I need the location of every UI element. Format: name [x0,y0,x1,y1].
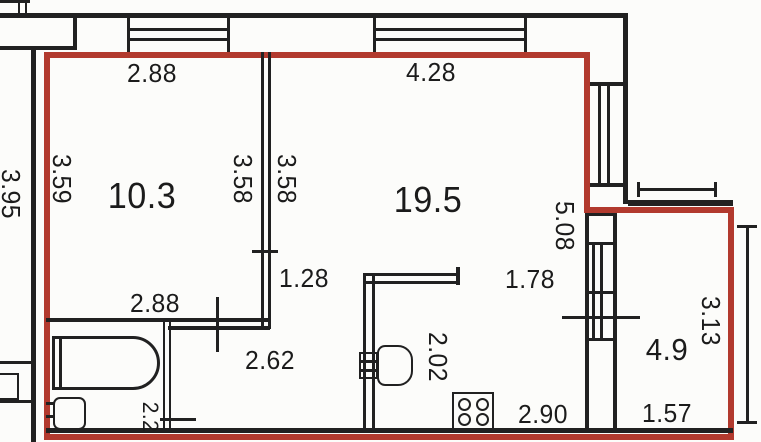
dim-balcony-height-label: 3.13 [698,281,724,361]
dim-corridor-label: 2.62 [232,347,308,373]
stove-burner [476,413,489,426]
dim-kitchen-opening-label: 1.78 [492,266,568,292]
balcony-window-dimension-cross [562,316,640,319]
dimension-line-right-cap [737,225,757,228]
dim-wall-stub-label: 1.28 [266,265,342,291]
boundary-top [44,52,590,58]
dimension-line-balcony-cap [637,182,640,197]
shaft-glazing [607,86,610,183]
stove-burner [476,398,489,411]
stove-burner [458,398,471,411]
wall-divider-tick [252,250,278,253]
floor-plan: 2.88 4.28 10.3 19.5 4.9 3.95 3.59 3.58 3… [0,0,761,442]
wall-bathroom-right [163,322,171,433]
wall-kitchen-balcony-cap [585,213,617,216]
sink-tap-line [359,369,378,372]
shaft-glazing [598,86,601,183]
neighbor-fixture-box [0,373,19,400]
dimension-line-right [746,226,749,424]
wall-upper-left-vertical [73,16,77,48]
dim-top-right-label: 4.28 [393,59,469,85]
washbasin-tap [46,402,54,405]
dim-left-outer-label: 3.95 [0,154,24,234]
neighbor-fixture-line [0,400,31,403]
window-tick [524,18,527,52]
sink-tap-line [359,360,378,363]
dimension-line-right-cap [737,421,757,424]
window-sill [373,38,527,41]
shaft-bottom-line [588,183,628,187]
window-tick [227,18,230,52]
dimension-line-balcony-cap [714,182,717,197]
window-tick [127,18,130,52]
dim-kitchen-width-label: 2.90 [505,401,581,427]
balcony-window-tick [585,291,617,294]
wall-kitchen-counter-cap [456,267,460,285]
balcony-area-label: 4.9 [629,334,705,365]
wall-building-right [623,13,628,204]
wall-top [0,13,628,18]
dim-right-height-label: 5.08 [552,186,578,266]
boundary-step [584,207,734,213]
dim-bottom-room-label: 2.88 [117,290,193,316]
room1-area-label: 10.3 [95,178,190,214]
dim-top-left-label: 2.88 [114,60,190,86]
window-sill [373,28,527,31]
wall-hall-top-lower [168,326,270,330]
room2-area-label: 19.5 [381,182,476,218]
dimension-tick-corridor [216,297,219,352]
wall-bathroom-tick [160,418,196,421]
balcony-window-tick [585,338,617,341]
dim-balcony-width-label: 1.57 [629,400,705,426]
wall-kitchen-counter-top [365,273,459,284]
bathtub-inner-line [59,339,62,387]
window-sill [127,38,230,41]
wall-upper-left-horizontal [0,46,77,50]
dim-mid-left-label: 3.58 [230,139,256,219]
wall-balcony-top [628,200,733,206]
neighbor-fixture-line [0,361,31,364]
dim-mid-right-label: 3.58 [274,139,300,219]
dim-left-inner-label: 3.59 [49,139,75,219]
washbasin-icon [53,397,86,430]
washbasin-tap [46,415,54,418]
window-sill [127,28,230,31]
window-tick [373,18,376,52]
boundary-left [44,52,50,440]
dimension-line-balcony-top [638,188,717,191]
stove-icon [452,392,494,431]
wall-neighbor-left [31,46,36,442]
kitchen-sink-icon [377,345,413,386]
bath-area-label: 2.2 [135,377,161,442]
dim-counter-label: 2.02 [425,317,451,397]
boundary-right [728,207,734,440]
sink-tap-box [359,352,378,379]
wall-top-notch-stub [18,0,27,13]
boundary-right-upper [584,52,590,212]
stove-burner [458,413,471,426]
wall-bathroom-top [46,318,270,322]
